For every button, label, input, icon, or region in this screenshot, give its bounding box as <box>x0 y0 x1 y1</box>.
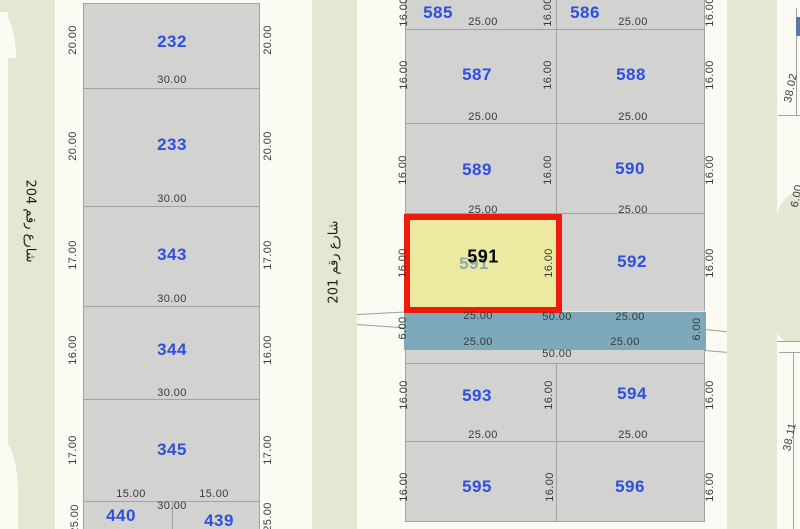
dim-road-bottom-left: 25.00 <box>463 336 493 348</box>
dim-593-bottom: 25.00 <box>468 429 498 441</box>
dim-232-left: 20.00 <box>67 25 79 55</box>
dim-586-bottom: 25.00 <box>618 16 648 28</box>
junction-line-right-lower <box>705 350 727 353</box>
dim-344-bottom: 30.00 <box>157 387 187 399</box>
parcel-number-590: 590 <box>615 159 645 179</box>
parcel-number-586: 586 <box>570 3 600 23</box>
dim-right-block-lower: 38.11 <box>781 422 799 453</box>
parcel-number-440: 440 <box>106 506 136 526</box>
street-right-band <box>727 0 777 529</box>
right-junction-line-upper <box>777 341 800 342</box>
dim-road-left: 6.00 <box>397 316 409 339</box>
parcel-number-343: 343 <box>157 245 187 265</box>
dim-345-bottom-right: 15.00 <box>199 488 229 500</box>
right-boundary-line-horizontal <box>778 115 800 116</box>
boundary-587-589 <box>406 123 704 124</box>
parcel-number-344: 344 <box>157 340 187 360</box>
dim-594-right: 16.00 <box>704 380 716 410</box>
dim-585-right: 16.00 <box>542 0 554 27</box>
dim-587-left: 16.00 <box>398 60 410 90</box>
dim-road-bottom-center: 50.00 <box>542 348 572 360</box>
parcel-number-591-selected: 591 <box>467 247 499 268</box>
dim-585-bottom: 25.00 <box>468 16 498 28</box>
dim-595-left: 16.00 <box>398 472 410 502</box>
dim-590-right: 16.00 <box>704 155 716 185</box>
dim-585-left: 16.00 <box>398 0 410 27</box>
dim-343-bottom: 30.00 <box>157 293 187 305</box>
parcel-number-439: 439 <box>204 511 234 529</box>
street-right-junction-bulge <box>775 192 800 342</box>
parcel-number-592: 592 <box>617 252 647 272</box>
boundary-344-345 <box>84 399 259 400</box>
dim-232-bottom: 30.00 <box>157 74 187 86</box>
adjacent-road-strip-top-right <box>796 17 800 36</box>
dim-589-left: 16.00 <box>397 155 409 185</box>
dim-439-right: 25.00 <box>262 502 274 529</box>
dim-232-right: 20.00 <box>262 25 274 55</box>
dim-344-left: 16.00 <box>67 335 79 365</box>
dim-road-bottom-right: 25.00 <box>610 336 640 348</box>
dim-344-right: 16.00 <box>262 335 274 365</box>
dim-road-top-center: 50.00 <box>542 311 572 323</box>
boundary-road-593 <box>406 363 704 364</box>
cadastral-map[interactable]: شارع رقم 204شارع رقم 2012322333433443454… <box>0 0 800 529</box>
parcel-number-585: 585 <box>423 3 453 23</box>
dim-345-right: 17.00 <box>262 435 274 465</box>
dim-road-top-right: 25.00 <box>615 311 645 323</box>
dim-595-right: 16.00 <box>544 472 556 502</box>
junction-line-201-upper <box>357 311 405 315</box>
dim-586-right: 16.00 <box>704 0 716 27</box>
dim-588-bottom: 25.00 <box>618 111 648 123</box>
dim-right-road: 6.00 <box>789 183 800 208</box>
street-204-band <box>8 0 55 529</box>
street-label-201: شارع رقم 201 <box>327 220 342 303</box>
junction-line-right-upper <box>705 329 727 332</box>
dim-589-bottom: 25.00 <box>468 204 498 216</box>
dim-233-right: 20.00 <box>262 131 274 161</box>
dim-343-left: 17.00 <box>67 240 79 270</box>
parcel-number-594: 594 <box>617 384 647 404</box>
dim-road-top-left: 25.00 <box>463 310 493 322</box>
parcel-number-589: 589 <box>462 160 492 180</box>
parcel-number-345: 345 <box>157 440 187 460</box>
parcel-number-587: 587 <box>462 65 492 85</box>
dim-588-right: 16.00 <box>704 60 716 90</box>
dim-594-bottom: 25.00 <box>618 429 648 441</box>
boundary-233-343 <box>84 206 259 207</box>
parcel-number-596: 596 <box>615 477 645 497</box>
dim-233-left: 20.00 <box>67 131 79 161</box>
dim-343-right: 17.00 <box>262 240 274 270</box>
dim-593-left: 16.00 <box>398 380 410 410</box>
dim-587-bottom: 25.00 <box>468 111 498 123</box>
boundary-343-344 <box>84 306 259 307</box>
dim-440-left: 25.00 <box>69 504 81 529</box>
dim-591-left: 16.00 <box>397 248 409 278</box>
dim-right-block-upper: 38.02 <box>782 72 800 103</box>
dim-233-bottom: 30.00 <box>157 193 187 205</box>
right-junction-line-lower <box>779 352 800 353</box>
dim-587-right: 16.00 <box>542 60 554 90</box>
boundary-593-595 <box>406 441 704 442</box>
dim-592-right: 16.00 <box>704 248 716 278</box>
street-label-204: شارع رقم 204 <box>23 179 38 262</box>
parcel-number-593: 593 <box>462 386 492 406</box>
parcel-number-588: 588 <box>616 65 646 85</box>
dim-345-bottom-left: 15.00 <box>116 488 146 500</box>
dim-593-right: 16.00 <box>543 380 555 410</box>
dim-591-right: 16.00 <box>543 248 555 278</box>
dim-589-right: 16.00 <box>542 155 554 185</box>
boundary-center-column-lower <box>556 363 557 522</box>
dim-590-bottom: 25.00 <box>618 204 648 216</box>
dim-road-right: 6.00 <box>691 317 703 340</box>
boundary-232-233 <box>84 88 259 89</box>
parcel-number-595: 595 <box>462 477 492 497</box>
parcel-number-233: 233 <box>157 135 187 155</box>
boundary-585-587 <box>406 29 704 30</box>
dim-345-left: 17.00 <box>67 435 79 465</box>
street-204-top-corner <box>0 0 55 12</box>
parcel-number-232: 232 <box>157 32 187 52</box>
dim-596-right: 16.00 <box>704 472 716 502</box>
dim-440-439-top: 30.00 <box>157 500 187 512</box>
